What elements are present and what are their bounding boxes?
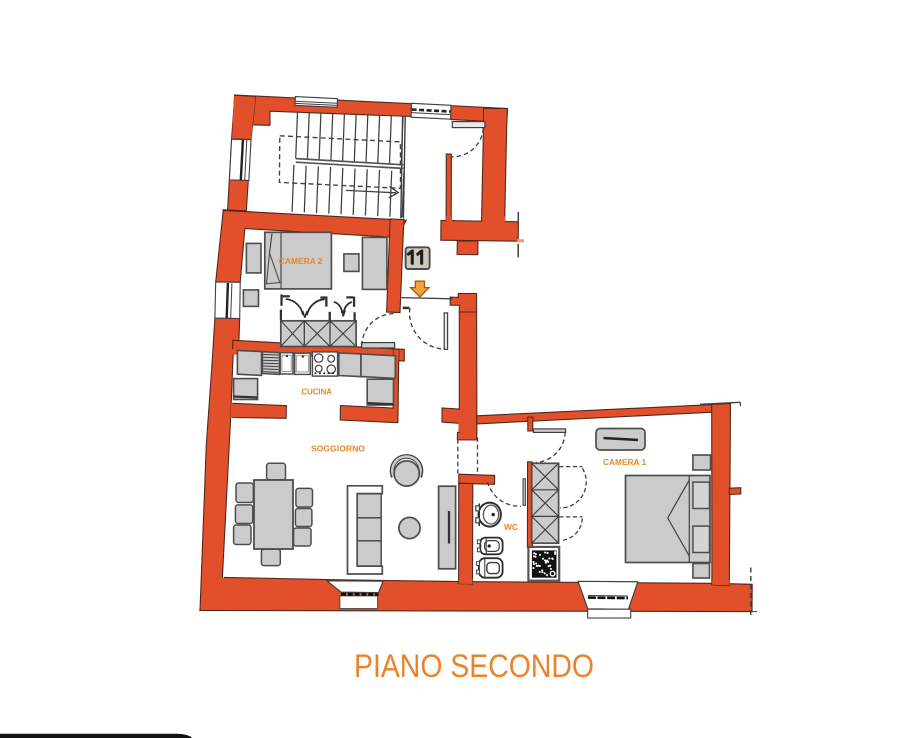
svg-text:CAMERA 1: CAMERA 1 — [603, 458, 647, 467]
svg-text:SOGGIORNO: SOGGIORNO — [311, 444, 365, 453]
svg-text:CAMERA 2: CAMERA 2 — [279, 257, 323, 266]
svg-text:WC: WC — [504, 523, 518, 532]
svg-text:PIANO SECONDO: PIANO SECONDO — [354, 648, 594, 684]
svg-text:CUCINA: CUCINA — [301, 387, 332, 396]
